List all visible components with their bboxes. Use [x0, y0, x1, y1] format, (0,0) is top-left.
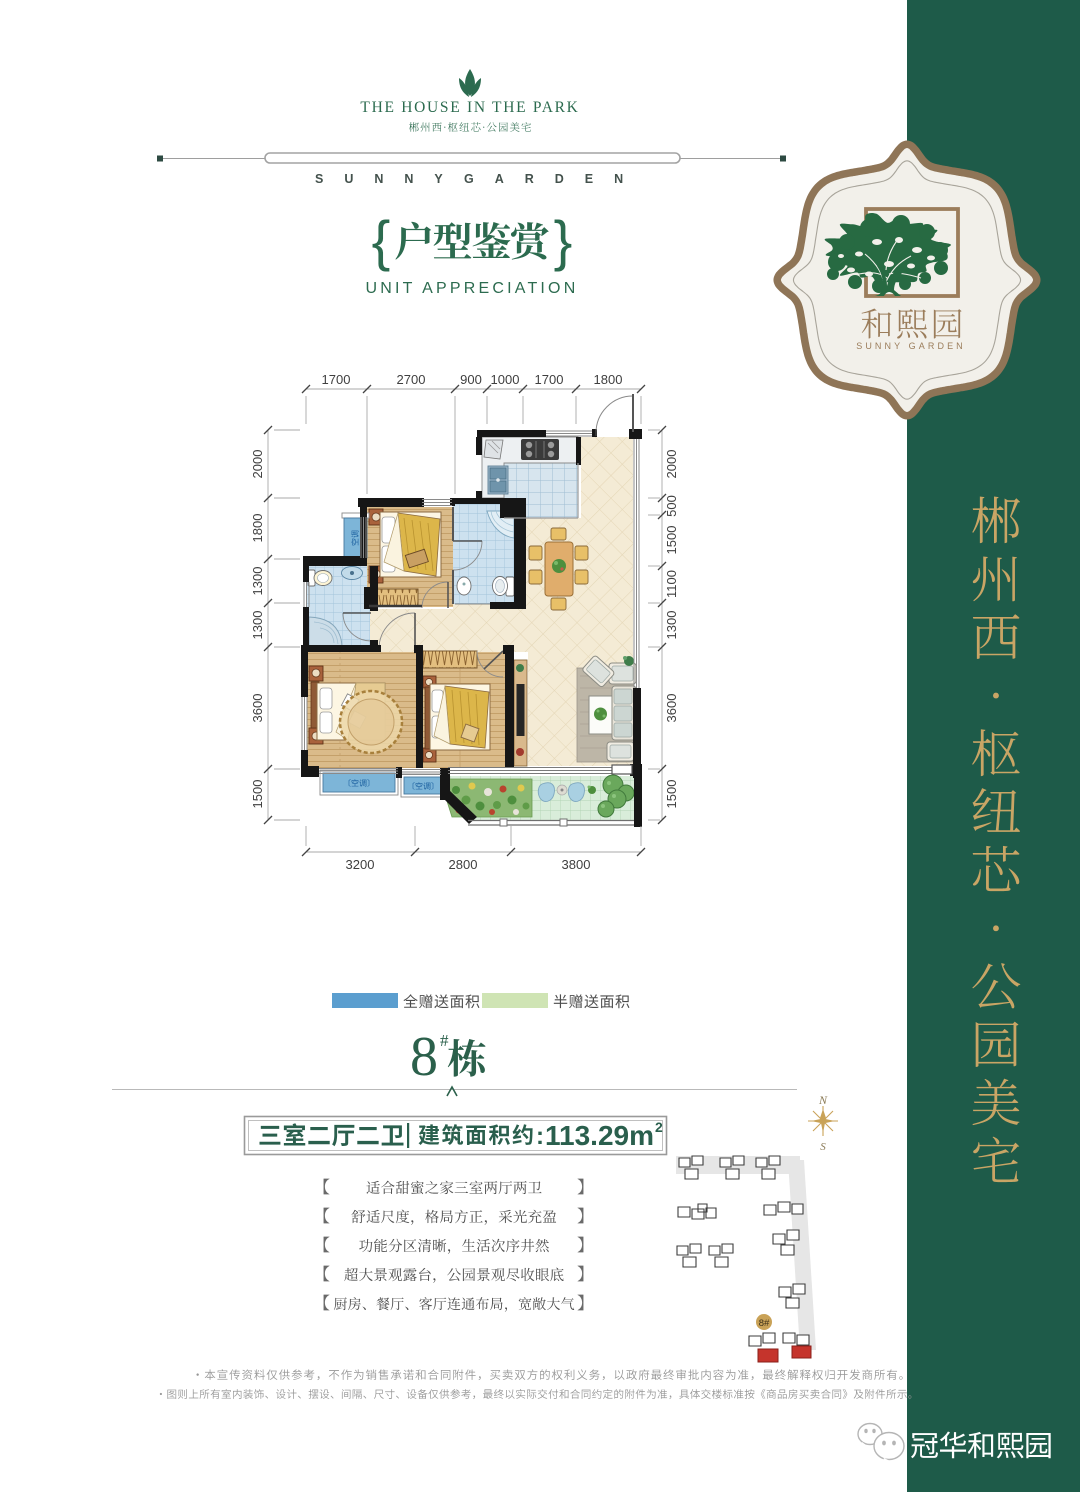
svg-text:1000: 1000 [491, 372, 520, 387]
svg-text:1700: 1700 [322, 372, 351, 387]
svg-text:1800: 1800 [594, 372, 623, 387]
svg-text:SUNNY GARDEN: SUNNY GARDEN [856, 341, 966, 351]
svg-text:3800: 3800 [562, 857, 591, 872]
svg-text:N: N [818, 1093, 828, 1107]
svg-text:1300: 1300 [250, 567, 265, 596]
svg-text:2000: 2000 [250, 450, 265, 479]
svg-text:1800: 1800 [250, 514, 265, 543]
svg-text:1500: 1500 [664, 780, 679, 809]
svg-text:1500: 1500 [250, 780, 265, 809]
svg-text:113.29m: 113.29m [545, 1120, 654, 1151]
svg-text::: : [536, 1123, 544, 1150]
svg-text:2: 2 [655, 1119, 663, 1135]
svg-text:2800: 2800 [449, 857, 478, 872]
svg-text:1100: 1100 [664, 570, 679, 598]
svg-text:1700: 1700 [535, 372, 564, 387]
svg-text:900: 900 [460, 372, 482, 387]
svg-text:S: S [820, 1141, 826, 1153]
svg-text:1300: 1300 [664, 611, 679, 640]
svg-text:500: 500 [664, 495, 679, 517]
svg-text:SUNNY: SUNNY [315, 172, 464, 186]
svg-text:8: 8 [410, 1026, 438, 1088]
svg-text:UNIT APPRECIATION: UNIT APPRECIATION [366, 280, 579, 297]
svg-text:3600: 3600 [664, 694, 679, 723]
svg-text:2000: 2000 [664, 450, 679, 479]
svg-text:{: { [372, 209, 391, 272]
svg-text:8#: 8# [759, 1318, 770, 1329]
svg-text:3200: 3200 [346, 857, 375, 872]
svg-text:2700: 2700 [397, 372, 426, 387]
svg-text:THE HOUSE IN THE PARK: THE HOUSE IN THE PARK [360, 99, 579, 116]
svg-text:1500: 1500 [664, 526, 679, 555]
svg-text:#: # [440, 1031, 449, 1050]
svg-text:}: } [554, 209, 573, 272]
svg-text:3600: 3600 [250, 694, 265, 723]
svg-text:1300: 1300 [250, 611, 265, 640]
svg-text:GARDEN: GARDEN [464, 172, 644, 186]
